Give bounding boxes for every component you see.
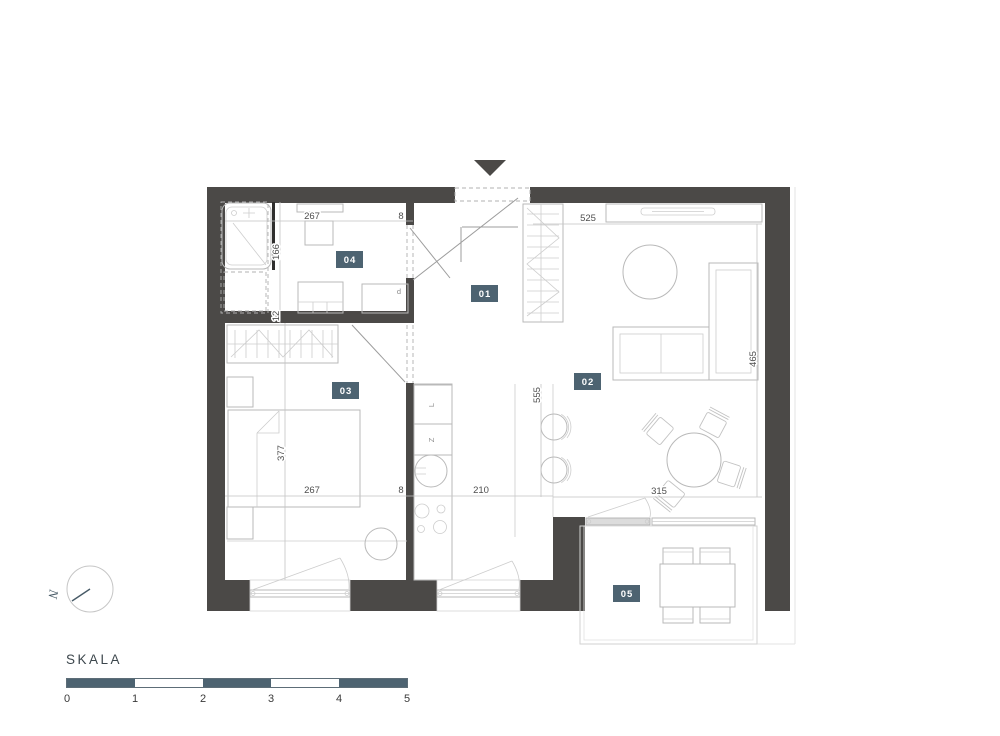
room-label-04: 04	[336, 251, 363, 268]
balcony-chair	[663, 548, 693, 564]
bedroom-door	[352, 325, 413, 383]
north-compass: N	[45, 566, 113, 612]
dim-living-depth: 465	[748, 351, 759, 367]
balcony-chair	[663, 607, 693, 623]
exterior-walls	[207, 187, 790, 611]
bedroom-window	[250, 558, 350, 611]
scale-segment	[135, 679, 203, 687]
scale-bar-group: SKALA 0 1 2 3 4 5	[66, 652, 408, 709]
kitchen-group: L Z	[414, 384, 571, 580]
dim-bath-lower: 12	[271, 311, 282, 322]
svg-text:01: 01	[479, 289, 492, 300]
scale-tick: 1	[132, 693, 138, 705]
scale-tick: 2	[200, 693, 206, 705]
room-label-05: 05	[613, 585, 640, 602]
balcony-chair	[700, 607, 730, 623]
round-rug	[623, 245, 677, 299]
tv-console	[606, 204, 762, 222]
bedroom-group	[227, 325, 407, 560]
washing-machine-label: d	[397, 287, 401, 296]
scale-tick-labels: 0 1 2 3 4 5	[66, 693, 408, 709]
bar-stool	[541, 414, 571, 440]
bathroom-cabinet	[298, 282, 343, 313]
shower-area	[224, 272, 266, 311]
cooktop	[415, 504, 447, 534]
dim-bedroom-depth: 377	[276, 445, 287, 461]
kitchen-sink	[414, 455, 447, 487]
scale-tick: 4	[336, 693, 342, 705]
dim-bath-depth: 166	[271, 244, 282, 260]
kitchen-window	[437, 561, 520, 611]
room-label-02: 02	[574, 373, 601, 390]
room-label-01: 01	[471, 285, 498, 302]
dim-bedroom-wall: 8	[398, 485, 403, 496]
dim-bath-wall: 8	[398, 211, 403, 222]
floor-plan-page: d L Z	[0, 0, 1000, 736]
dining-chair	[699, 407, 729, 438]
dim-living-width: 525	[580, 213, 596, 224]
dishwasher-label: Z	[427, 437, 436, 442]
scale-tick: 0	[64, 693, 70, 705]
balcony-table	[660, 564, 735, 607]
fridge: L	[414, 385, 452, 424]
bar-counter-edge	[515, 384, 553, 537]
north-letter: N	[45, 588, 62, 601]
dim-bath-width: 267	[304, 211, 320, 222]
compass-needle	[72, 589, 90, 601]
fridge-label: L	[427, 403, 436, 407]
scale-bar-title: SKALA	[66, 652, 408, 667]
pouf	[365, 528, 397, 560]
dim-living-height: 555	[532, 387, 543, 403]
bedroom-bench	[227, 507, 253, 539]
balcony-door	[586, 518, 650, 525]
scale-segment	[271, 679, 339, 687]
hall-wardrobe	[523, 204, 563, 322]
bath-drain-icon	[232, 211, 237, 216]
floor-plan-drawing: d L Z	[0, 0, 1000, 736]
scale-segment	[67, 679, 135, 687]
dimension-lines	[225, 202, 762, 580]
bar-stool	[541, 457, 571, 483]
bathroom-group	[221, 202, 271, 313]
dining-chair	[717, 461, 746, 489]
svg-text:04: 04	[344, 255, 357, 266]
svg-text:05: 05	[621, 589, 634, 600]
balcony-chair	[700, 548, 730, 564]
entrance-arrow-icon	[474, 160, 506, 176]
washbasin	[305, 221, 333, 245]
room-label-03: 03	[332, 382, 359, 399]
washing-machine: d	[362, 284, 408, 313]
balcony-group	[580, 526, 757, 644]
dim-terrace-width: 315	[651, 486, 667, 497]
dining-table	[667, 433, 721, 487]
dim-bedroom-width: 267	[304, 485, 320, 496]
bathroom-door	[407, 225, 450, 278]
scale-segment	[203, 679, 271, 687]
nightstand	[227, 377, 253, 407]
bed	[228, 410, 360, 507]
svg-text:02: 02	[582, 377, 595, 388]
balcony-door-window	[586, 498, 755, 525]
bathtub	[222, 203, 271, 269]
bath-faucet-icon	[243, 208, 255, 218]
dining-chair	[642, 413, 674, 445]
dim-kitchen-width: 210	[473, 485, 489, 496]
scale-tick: 3	[268, 693, 274, 705]
bedroom-wardrobe	[227, 325, 338, 363]
dishwasher: Z	[414, 424, 452, 455]
svg-text:03: 03	[340, 386, 353, 397]
scale-segment	[339, 679, 407, 687]
sofa	[613, 263, 758, 380]
scale-bar	[66, 678, 408, 688]
living-room-group	[606, 204, 762, 512]
scale-tick: 5	[404, 693, 410, 705]
